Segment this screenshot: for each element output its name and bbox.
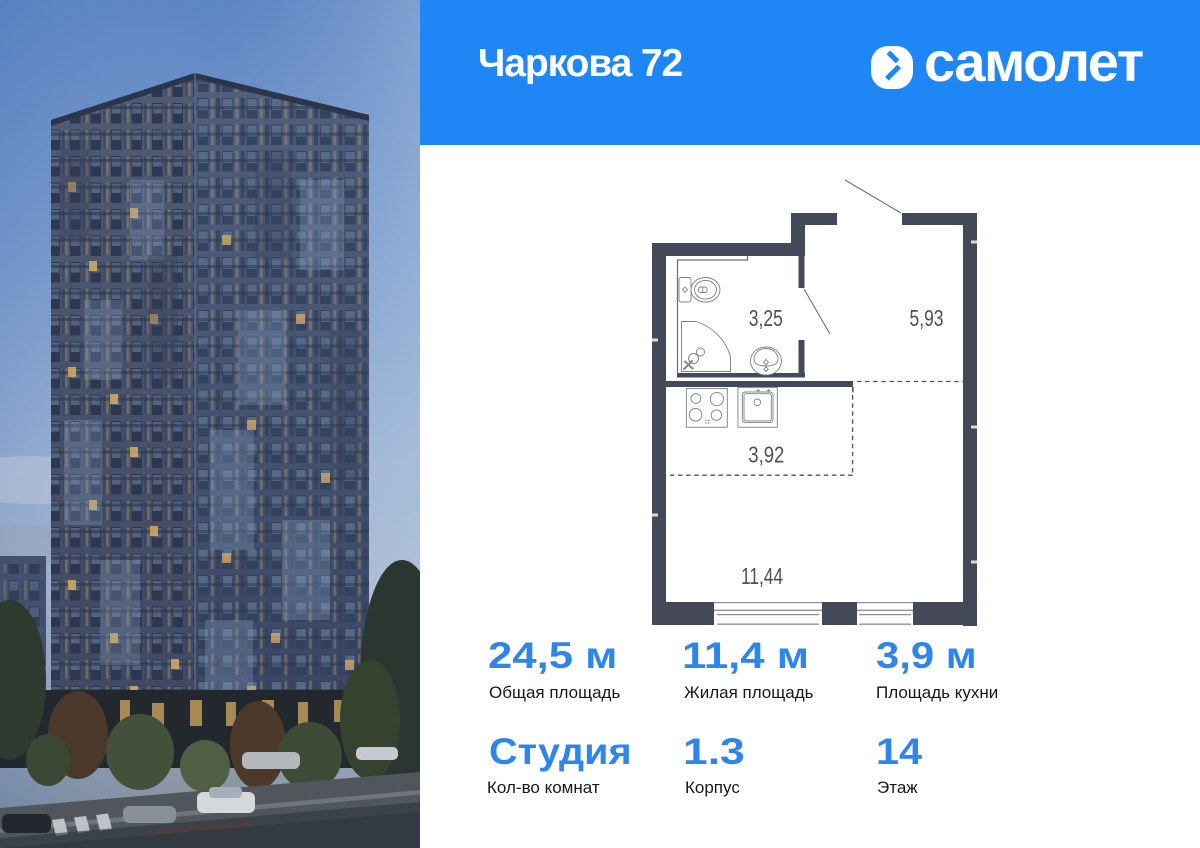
svg-text:3,25: 3,25 — [749, 305, 783, 331]
svg-text:3,92: 3,92 — [748, 442, 784, 468]
svg-text:5,93: 5,93 — [910, 305, 944, 331]
svg-text:11,44: 11,44 — [741, 563, 783, 589]
